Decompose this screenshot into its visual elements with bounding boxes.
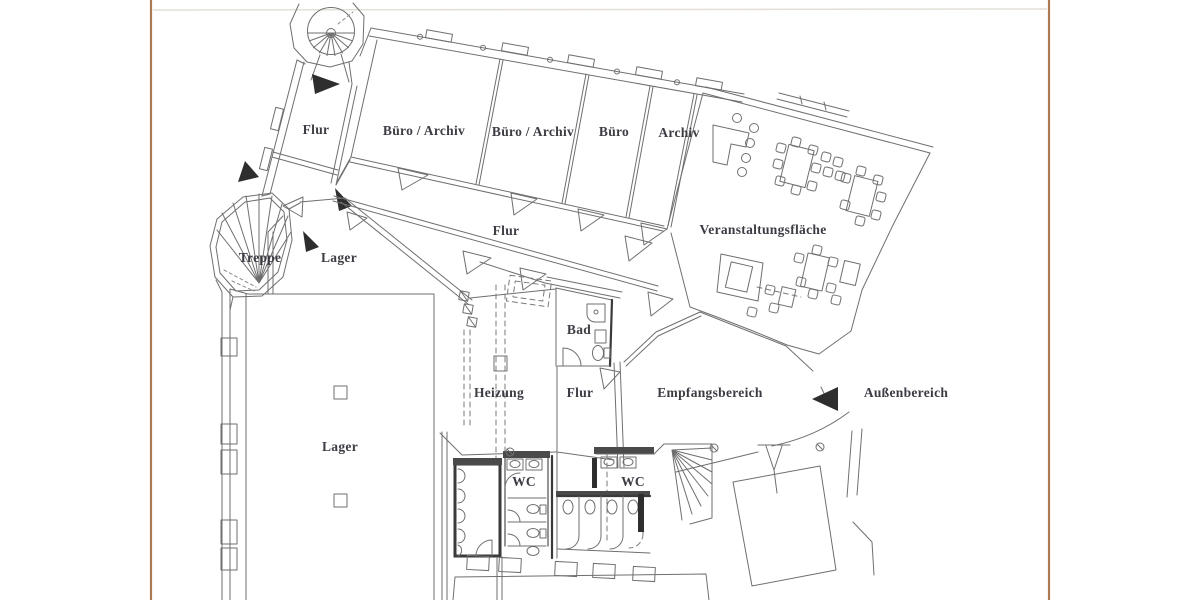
door-wedge — [335, 188, 352, 211]
event-area-furniture — [713, 114, 886, 318]
room-label-wc-rechts: WC — [621, 474, 645, 489]
room-label-heizung: Heizung — [474, 385, 524, 400]
shower — [587, 304, 605, 322]
entrance-arrow-icon — [812, 387, 838, 411]
room-label-lager-klein: Lager — [321, 250, 357, 265]
wc-block — [453, 443, 824, 600]
door-wedge — [303, 231, 319, 252]
room-label-flur-korridor: Flur — [493, 223, 520, 238]
urinals — [458, 469, 465, 556]
room-label-empfangsbereich: Empfangsbereich — [657, 385, 763, 400]
event-wing — [667, 87, 933, 354]
column — [334, 494, 347, 507]
room-label-flur-mitte: Flur — [567, 385, 594, 400]
courtyard-square — [733, 445, 836, 586]
room-label-wc-links: WC — [512, 474, 536, 489]
room-label-buero-archiv-1: Büro / Archiv — [383, 123, 465, 138]
toilet — [593, 346, 604, 361]
room-label-veranstaltungsflaeche: Veranstaltungsfläche — [699, 222, 826, 237]
room-label-flur-oben: Flur — [303, 122, 330, 137]
column — [334, 386, 347, 399]
stair-direction-wedge — [312, 74, 340, 94]
room-label-treppe: Treppe — [239, 250, 282, 265]
room-label-buero: Büro — [599, 124, 629, 139]
floor-plan-page: FlurBüro / ArchivBüro / ArchivBüroArchiv… — [0, 0, 1200, 600]
room-label-bad: Bad — [567, 322, 591, 337]
middle-zone — [440, 275, 624, 468]
north-arrow-icon — [238, 161, 259, 182]
scan-top-edge — [153, 9, 1047, 10]
room-label-buero-archiv-2: Büro / Archiv — [492, 124, 574, 139]
floor-plan-svg: FlurBüro / ArchivBüro / ArchivBüroArchiv… — [0, 0, 1200, 600]
room-label-aussenbereich: Außenbereich — [864, 385, 949, 400]
spiral-staircase — [290, 3, 364, 94]
page-frame — [151, 0, 1049, 600]
room-label-archiv: Archiv — [658, 125, 699, 140]
bar-counter — [713, 125, 749, 165]
sink — [595, 330, 606, 343]
room-label-lager-gross: Lager — [322, 439, 358, 454]
